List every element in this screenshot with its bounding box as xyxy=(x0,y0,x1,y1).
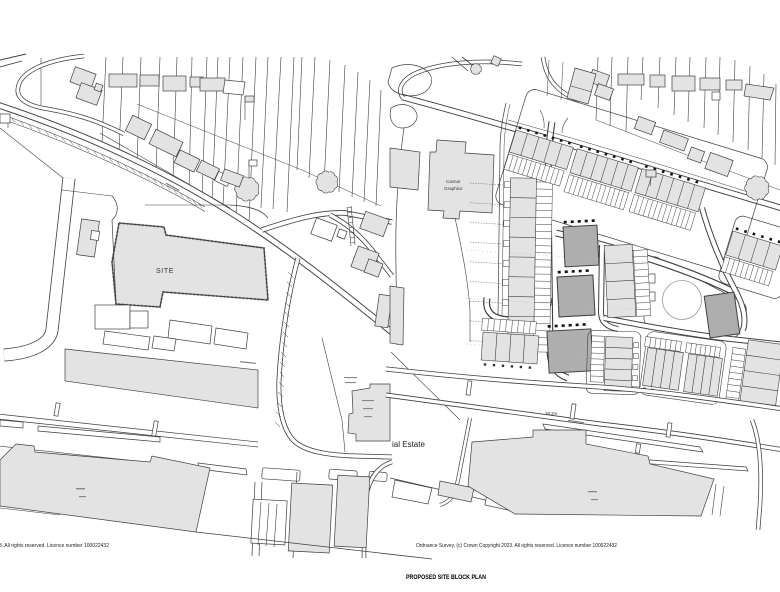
svg-text:SITE: SITE xyxy=(156,268,174,275)
svg-text:Graphics: Graphics xyxy=(444,186,463,191)
svg-text:38.2m: 38.2m xyxy=(545,411,558,416)
svg-text:Cactus: Cactus xyxy=(446,179,461,184)
svg-text:3. All rights reserved. Licenc: 3. All rights reserved. Licence number 1… xyxy=(0,543,109,549)
svg-text:ial Estate: ial Estate xyxy=(392,440,425,449)
svg-text:PROPOSED SITE BLOCK PLAN: PROPOSED SITE BLOCK PLAN xyxy=(406,574,486,581)
svg-text:Ordnance Survey, (c) Crown Cop: Ordnance Survey, (c) Crown Copyright 202… xyxy=(416,543,617,549)
